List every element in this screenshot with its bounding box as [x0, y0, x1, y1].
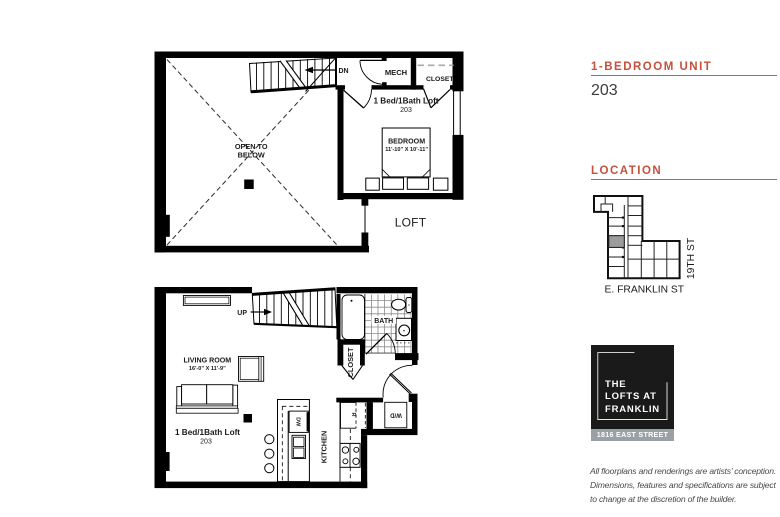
svg-text:16'-0" X 11'-9": 16'-0" X 11'-9" — [189, 366, 226, 372]
svg-text:MECH: MECH — [385, 68, 407, 77]
svg-text:BEDROOM: BEDROOM — [388, 138, 425, 146]
svg-text:1 Bed/1Bath Loft: 1 Bed/1Bath Loft — [175, 428, 240, 437]
svg-text:19TH ST: 19TH ST — [686, 237, 697, 279]
svg-text:W/D: W/D — [390, 412, 402, 418]
svg-text:LOFT: LOFT — [395, 216, 427, 230]
svg-text:E. FRANKLIN ST: E. FRANKLIN ST — [605, 285, 685, 296]
svg-text:203: 203 — [400, 107, 412, 114]
svg-text:KITCHEN: KITCHEN — [319, 431, 328, 463]
svg-text:CLOSET: CLOSET — [346, 347, 355, 377]
svg-text:R: R — [350, 412, 356, 416]
svg-text:LIVING ROOM: LIVING ROOM — [183, 356, 231, 364]
svg-text:DN: DN — [339, 68, 349, 75]
svg-text:UP: UP — [237, 310, 247, 317]
svg-text:1 Bed/1Bath Loft: 1 Bed/1Bath Loft — [373, 97, 438, 106]
svg-text:BATH: BATH — [374, 318, 393, 325]
svg-text:203: 203 — [200, 438, 212, 445]
svg-text:DW: DW — [295, 417, 301, 427]
svg-text:BELOW: BELOW — [238, 150, 265, 159]
svg-text:CLOSET: CLOSET — [426, 76, 454, 83]
svg-text:11'-10" X 10'-11": 11'-10" X 10'-11" — [385, 147, 428, 153]
